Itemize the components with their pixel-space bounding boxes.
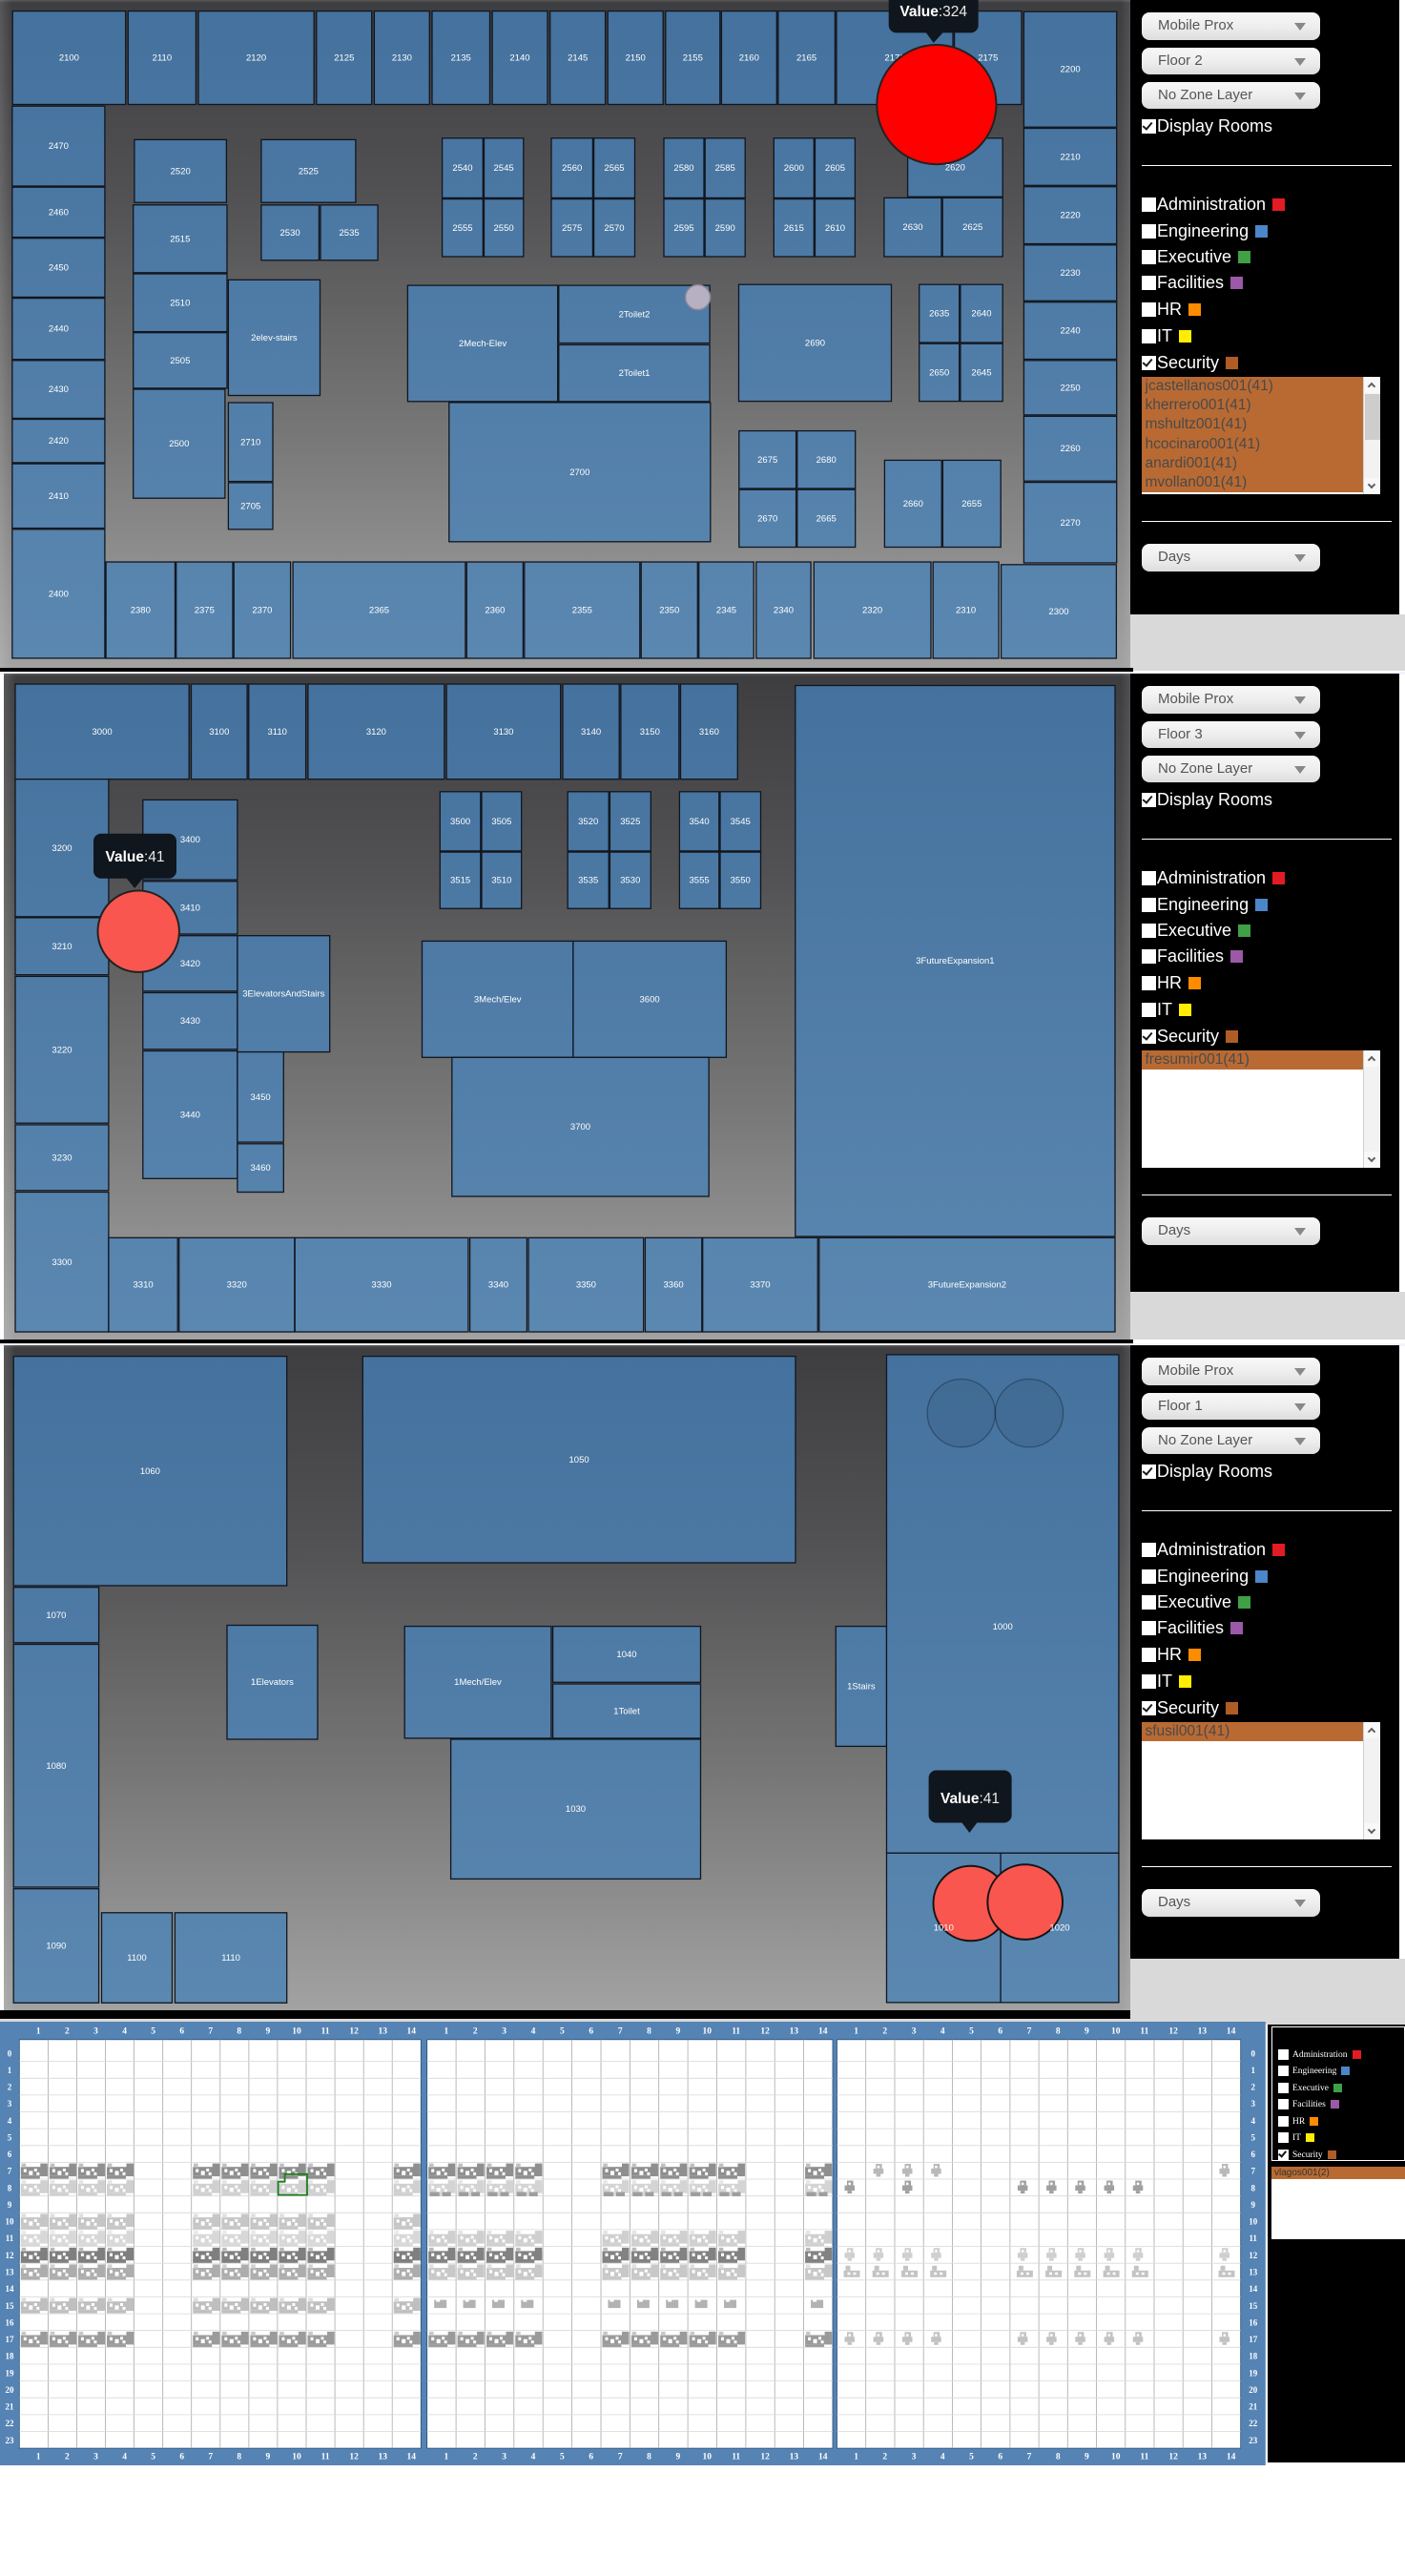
- svg-text:11: 11: [1140, 2026, 1148, 2036]
- svg-text:15: 15: [1249, 2300, 1257, 2310]
- svg-text:1: 1: [854, 2452, 858, 2462]
- svg-text:3430: 3430: [180, 1016, 200, 1027]
- svg-text:2Toilet2: 2Toilet2: [619, 309, 651, 320]
- svg-text:10: 10: [1111, 2452, 1121, 2462]
- svg-text:3555: 3555: [690, 876, 710, 886]
- svg-text:3515: 3515: [450, 876, 470, 886]
- svg-text:2665: 2665: [816, 513, 837, 524]
- svg-text:10: 10: [292, 2026, 301, 2036]
- svg-text:11: 11: [6, 2233, 14, 2243]
- svg-text:2: 2: [1250, 2082, 1255, 2091]
- svg-text:2645: 2645: [971, 367, 991, 378]
- svg-text:2460: 2460: [49, 207, 69, 218]
- svg-text:22: 22: [1249, 2419, 1257, 2428]
- svg-text:11: 11: [1140, 2452, 1148, 2462]
- svg-text:2130: 2130: [392, 53, 412, 64]
- svg-text:2240: 2240: [1061, 326, 1081, 337]
- svg-text:2555: 2555: [452, 223, 472, 234]
- svg-text:9: 9: [1085, 2452, 1089, 2462]
- svg-text:4: 4: [122, 2026, 127, 2036]
- svg-text:23: 23: [6, 2435, 14, 2444]
- svg-text:2620: 2620: [945, 163, 965, 174]
- svg-text:2230: 2230: [1061, 268, 1081, 279]
- svg-text:2155: 2155: [683, 53, 703, 64]
- svg-text:21: 21: [1249, 2401, 1257, 2411]
- svg-text:10: 10: [703, 2026, 713, 2036]
- svg-text:2300: 2300: [1048, 607, 1068, 617]
- svg-text:1070: 1070: [46, 1610, 66, 1621]
- svg-text:3: 3: [1250, 2099, 1255, 2109]
- svg-text:3230: 3230: [52, 1153, 72, 1163]
- svg-text:8: 8: [647, 2026, 651, 2036]
- svg-text:3: 3: [912, 2452, 917, 2462]
- svg-text:2: 2: [473, 2026, 478, 2036]
- svg-text:10: 10: [6, 2216, 14, 2226]
- svg-text:2670: 2670: [757, 513, 777, 524]
- svg-text:2680: 2680: [816, 455, 837, 466]
- svg-text:18: 18: [6, 2351, 14, 2360]
- svg-text:2610: 2610: [825, 223, 845, 234]
- svg-text:1110: 1110: [221, 1953, 240, 1963]
- svg-text:8: 8: [1056, 2452, 1061, 2462]
- svg-text:12: 12: [6, 2250, 14, 2259]
- svg-text:2535: 2535: [340, 228, 360, 239]
- svg-text:3210: 3210: [52, 942, 72, 952]
- svg-text:2: 2: [65, 2452, 70, 2462]
- svg-text:3330: 3330: [371, 1280, 391, 1291]
- svg-text:5: 5: [560, 2026, 565, 2036]
- svg-text:2575: 2575: [562, 223, 582, 234]
- svg-text:2160: 2160: [739, 53, 759, 64]
- svg-text:17: 17: [1249, 2334, 1257, 2343]
- svg-text:3400: 3400: [180, 835, 200, 845]
- svg-text:2550: 2550: [494, 223, 514, 234]
- svg-text:9: 9: [1085, 2026, 1089, 2036]
- svg-text:6: 6: [179, 2452, 184, 2462]
- svg-text:2Mech-Elev: 2Mech-Elev: [459, 339, 506, 349]
- svg-text:3340: 3340: [488, 1280, 508, 1291]
- svg-text:2545: 2545: [494, 163, 514, 174]
- svg-text:2355: 2355: [572, 606, 592, 616]
- svg-text:2410: 2410: [49, 491, 69, 502]
- svg-text:13: 13: [1198, 2026, 1208, 2036]
- svg-text:13: 13: [790, 2452, 799, 2462]
- svg-text:2380: 2380: [131, 606, 151, 616]
- svg-text:8: 8: [8, 2183, 12, 2192]
- svg-text:2660: 2660: [903, 499, 923, 509]
- svg-text:11: 11: [321, 2452, 330, 2462]
- svg-text:3420: 3420: [180, 959, 200, 969]
- svg-text:2400: 2400: [49, 589, 69, 599]
- svg-text:9: 9: [676, 2026, 681, 2036]
- svg-text:12: 12: [760, 2026, 770, 2036]
- svg-text:2200: 2200: [1061, 65, 1081, 75]
- svg-text:19: 19: [1249, 2368, 1257, 2378]
- svg-text:2560: 2560: [562, 163, 582, 174]
- svg-text:6: 6: [589, 2026, 593, 2036]
- svg-text:4: 4: [531, 2026, 536, 2036]
- svg-text:3520: 3520: [578, 817, 598, 827]
- svg-text:2260: 2260: [1061, 444, 1081, 454]
- svg-text:7: 7: [208, 2026, 213, 2036]
- svg-text:5: 5: [151, 2026, 155, 2036]
- svg-text:3370: 3370: [750, 1280, 770, 1291]
- svg-text:9: 9: [266, 2452, 271, 2462]
- svg-text:4: 4: [531, 2452, 536, 2462]
- svg-text:2: 2: [882, 2026, 887, 2036]
- svg-text:4: 4: [940, 2452, 945, 2462]
- svg-text:2500: 2500: [169, 439, 189, 449]
- svg-text:Value:324: Value:324: [899, 4, 967, 20]
- svg-text:1: 1: [36, 2452, 41, 2462]
- svg-text:3: 3: [93, 2452, 98, 2462]
- svg-text:10: 10: [703, 2452, 713, 2462]
- svg-text:9: 9: [676, 2452, 681, 2462]
- svg-text:16: 16: [1249, 2317, 1257, 2327]
- svg-text:15: 15: [6, 2300, 14, 2310]
- svg-text:1040: 1040: [616, 1650, 636, 1660]
- svg-text:9: 9: [8, 2200, 12, 2210]
- svg-text:13: 13: [378, 2452, 387, 2462]
- svg-text:2510: 2510: [170, 298, 190, 308]
- svg-text:3320: 3320: [227, 1280, 247, 1291]
- svg-text:1100: 1100: [127, 1953, 146, 1963]
- svg-text:3: 3: [502, 2452, 506, 2462]
- svg-text:3530: 3530: [620, 876, 640, 886]
- svg-text:2540: 2540: [452, 163, 472, 174]
- svg-text:1000: 1000: [993, 1622, 1013, 1632]
- svg-text:3510: 3510: [491, 876, 511, 886]
- svg-text:5: 5: [151, 2452, 155, 2462]
- svg-text:1090: 1090: [46, 1942, 66, 1952]
- svg-text:7: 7: [618, 2026, 623, 2036]
- svg-text:2310: 2310: [956, 606, 976, 616]
- svg-text:2345: 2345: [716, 606, 736, 616]
- svg-text:7: 7: [8, 2166, 12, 2175]
- svg-text:2430: 2430: [49, 384, 69, 395]
- svg-text:3300: 3300: [52, 1257, 72, 1268]
- svg-text:10: 10: [1111, 2026, 1121, 2036]
- svg-text:3220: 3220: [52, 1045, 72, 1055]
- svg-text:1080: 1080: [46, 1761, 66, 1772]
- svg-text:3310: 3310: [134, 1280, 154, 1291]
- svg-text:2710: 2710: [240, 437, 260, 447]
- svg-text:2525: 2525: [299, 166, 319, 177]
- svg-text:2635: 2635: [929, 309, 949, 320]
- svg-text:1020: 1020: [1049, 1923, 1069, 1934]
- svg-text:2705: 2705: [240, 501, 260, 511]
- svg-text:2640: 2640: [971, 309, 991, 320]
- svg-text:8: 8: [237, 2452, 241, 2462]
- svg-text:2140: 2140: [509, 53, 529, 64]
- svg-text:8: 8: [1056, 2026, 1061, 2036]
- svg-text:4: 4: [122, 2452, 127, 2462]
- svg-text:13: 13: [6, 2267, 14, 2276]
- svg-text:1: 1: [444, 2026, 449, 2036]
- svg-text:Value:41: Value:41: [940, 1791, 1000, 1807]
- svg-text:19: 19: [6, 2368, 14, 2378]
- svg-text:3450: 3450: [251, 1092, 271, 1103]
- svg-text:11: 11: [732, 2452, 740, 2462]
- svg-text:3140: 3140: [581, 727, 601, 737]
- svg-text:3410: 3410: [180, 903, 200, 913]
- svg-text:3ElevatorsAndStairs: 3ElevatorsAndStairs: [242, 989, 324, 1000]
- svg-text:3525: 3525: [620, 817, 640, 827]
- svg-text:3535: 3535: [578, 876, 598, 886]
- svg-text:3110: 3110: [267, 727, 286, 737]
- svg-text:3: 3: [93, 2026, 98, 2036]
- svg-text:5: 5: [969, 2452, 974, 2462]
- svg-text:3FutureExpansion1: 3FutureExpansion1: [916, 956, 994, 966]
- svg-text:12: 12: [1168, 2026, 1178, 2036]
- svg-text:2165: 2165: [796, 53, 816, 64]
- svg-text:0: 0: [1250, 2048, 1255, 2058]
- svg-text:7: 7: [208, 2452, 213, 2462]
- svg-text:3: 3: [502, 2026, 506, 2036]
- svg-text:2570: 2570: [604, 223, 624, 234]
- svg-text:3500: 3500: [450, 817, 470, 827]
- svg-text:4: 4: [1250, 2115, 1255, 2125]
- svg-text:6: 6: [179, 2026, 184, 2036]
- svg-text:3: 3: [912, 2026, 917, 2036]
- svg-text:4: 4: [940, 2026, 945, 2036]
- svg-text:2530: 2530: [280, 228, 300, 239]
- svg-text:2520: 2520: [171, 166, 191, 177]
- svg-text:6: 6: [998, 2026, 1002, 2036]
- svg-text:2: 2: [473, 2452, 478, 2462]
- svg-text:2440: 2440: [49, 324, 69, 335]
- svg-text:2590: 2590: [715, 223, 735, 234]
- svg-text:14: 14: [1227, 2452, 1236, 2462]
- svg-text:12: 12: [349, 2026, 359, 2036]
- svg-text:2505: 2505: [170, 356, 190, 366]
- svg-text:3Mech/Elev: 3Mech/Elev: [474, 994, 522, 1005]
- svg-text:14: 14: [407, 2452, 417, 2462]
- svg-text:14: 14: [818, 2026, 828, 2036]
- svg-text:12: 12: [1249, 2250, 1257, 2259]
- svg-text:2625: 2625: [962, 222, 982, 233]
- svg-text:20: 20: [1249, 2384, 1257, 2394]
- svg-text:1: 1: [854, 2026, 858, 2036]
- svg-text:2: 2: [882, 2452, 887, 2462]
- svg-text:10: 10: [292, 2452, 301, 2462]
- svg-text:2145: 2145: [568, 53, 588, 64]
- svg-text:1: 1: [444, 2452, 449, 2462]
- svg-text:1: 1: [1250, 2065, 1255, 2074]
- svg-text:3440: 3440: [180, 1110, 200, 1120]
- svg-text:3: 3: [8, 2099, 12, 2109]
- svg-text:3100: 3100: [209, 727, 229, 737]
- svg-text:2100: 2100: [59, 53, 79, 64]
- svg-text:2Toilet1: 2Toilet1: [619, 368, 651, 379]
- svg-text:2110: 2110: [153, 53, 172, 64]
- svg-text:1: 1: [36, 2026, 41, 2036]
- svg-text:1Mech/Elev: 1Mech/Elev: [454, 1677, 502, 1688]
- svg-text:17: 17: [6, 2334, 14, 2343]
- svg-text:2370: 2370: [252, 606, 272, 616]
- svg-text:3000: 3000: [93, 727, 113, 737]
- svg-text:5: 5: [1250, 2132, 1255, 2142]
- svg-text:10: 10: [1249, 2216, 1257, 2226]
- svg-text:20: 20: [6, 2384, 14, 2394]
- svg-text:1Toilet: 1Toilet: [613, 1707, 640, 1717]
- svg-text:3540: 3540: [690, 817, 710, 827]
- svg-text:2580: 2580: [673, 163, 693, 174]
- svg-text:3545: 3545: [731, 817, 751, 827]
- svg-text:5: 5: [8, 2132, 12, 2142]
- svg-text:3130: 3130: [493, 727, 513, 737]
- svg-text:5: 5: [969, 2026, 974, 2036]
- svg-text:0: 0: [8, 2048, 12, 2058]
- svg-text:2270: 2270: [1061, 518, 1081, 529]
- svg-text:13: 13: [1198, 2452, 1208, 2462]
- svg-text:3550: 3550: [731, 876, 751, 886]
- svg-text:1: 1: [8, 2065, 12, 2074]
- svg-text:2175: 2175: [978, 53, 998, 64]
- svg-text:7: 7: [1250, 2166, 1255, 2175]
- svg-text:2135: 2135: [451, 53, 471, 64]
- svg-text:13: 13: [1249, 2267, 1257, 2276]
- svg-text:2450: 2450: [49, 263, 69, 274]
- svg-text:2250: 2250: [1061, 383, 1081, 393]
- svg-text:6: 6: [998, 2452, 1002, 2462]
- svg-text:2650: 2650: [929, 367, 949, 378]
- svg-text:11: 11: [321, 2026, 330, 2036]
- svg-text:13: 13: [790, 2026, 799, 2036]
- svg-text:2605: 2605: [825, 163, 845, 174]
- svg-text:1Stairs: 1Stairs: [847, 1682, 876, 1693]
- svg-text:2375: 2375: [195, 606, 215, 616]
- svg-text:4: 4: [8, 2115, 12, 2125]
- svg-text:2365: 2365: [369, 606, 389, 616]
- svg-text:16: 16: [6, 2317, 14, 2327]
- svg-text:14: 14: [1227, 2026, 1236, 2036]
- svg-text:7: 7: [618, 2452, 623, 2462]
- svg-text:11: 11: [1249, 2233, 1257, 2243]
- svg-text:3505: 3505: [491, 817, 511, 827]
- svg-text:6: 6: [8, 2150, 12, 2159]
- svg-text:12: 12: [760, 2452, 770, 2462]
- svg-text:2: 2: [8, 2082, 12, 2091]
- svg-text:2470: 2470: [49, 141, 69, 152]
- svg-text:2: 2: [65, 2026, 70, 2036]
- svg-text:14: 14: [6, 2284, 14, 2294]
- svg-text:21: 21: [6, 2401, 14, 2411]
- svg-text:6: 6: [1250, 2150, 1255, 2159]
- svg-text:6: 6: [589, 2452, 593, 2462]
- svg-text:2340: 2340: [774, 606, 794, 616]
- svg-text:2630: 2630: [902, 222, 922, 233]
- svg-text:3160: 3160: [699, 727, 719, 737]
- svg-text:2120: 2120: [246, 53, 266, 64]
- svg-text:3200: 3200: [52, 843, 72, 854]
- svg-text:2elev-stairs: 2elev-stairs: [251, 333, 298, 343]
- svg-text:8: 8: [237, 2026, 241, 2036]
- svg-text:2150: 2150: [626, 53, 646, 64]
- svg-text:2515: 2515: [170, 234, 190, 244]
- svg-text:2320: 2320: [862, 606, 882, 616]
- svg-text:3700: 3700: [570, 1122, 590, 1132]
- svg-text:3150: 3150: [640, 727, 660, 737]
- svg-text:8: 8: [647, 2452, 651, 2462]
- svg-text:3360: 3360: [664, 1280, 684, 1291]
- svg-text:2700: 2700: [569, 467, 589, 478]
- svg-text:22: 22: [6, 2419, 14, 2428]
- svg-text:2125: 2125: [334, 53, 354, 64]
- svg-text:2655: 2655: [961, 499, 981, 509]
- svg-text:9: 9: [1250, 2200, 1255, 2210]
- svg-text:3350: 3350: [576, 1280, 596, 1291]
- svg-text:3460: 3460: [251, 1163, 271, 1174]
- svg-text:1060: 1060: [140, 1466, 160, 1477]
- svg-text:14: 14: [818, 2452, 828, 2462]
- svg-text:14: 14: [1249, 2284, 1257, 2294]
- svg-text:1010: 1010: [934, 1923, 954, 1934]
- svg-text:5: 5: [560, 2452, 565, 2462]
- svg-text:2690: 2690: [805, 338, 825, 348]
- svg-text:3120: 3120: [366, 727, 386, 737]
- svg-text:2585: 2585: [715, 163, 735, 174]
- svg-text:13: 13: [378, 2026, 387, 2036]
- svg-text:2595: 2595: [673, 223, 693, 234]
- svg-text:1030: 1030: [566, 1804, 586, 1815]
- svg-text:2565: 2565: [604, 163, 624, 174]
- svg-text:11: 11: [732, 2026, 740, 2036]
- svg-text:2210: 2210: [1061, 152, 1081, 162]
- svg-text:7: 7: [1027, 2452, 1032, 2462]
- svg-text:2220: 2220: [1061, 211, 1081, 221]
- svg-text:14: 14: [407, 2026, 417, 2036]
- svg-text:2675: 2675: [757, 455, 777, 466]
- svg-text:Value:41: Value:41: [105, 849, 164, 865]
- svg-text:9: 9: [266, 2026, 271, 2036]
- svg-text:2600: 2600: [784, 163, 804, 174]
- svg-text:23: 23: [1249, 2435, 1257, 2444]
- svg-text:1Elevators: 1Elevators: [251, 1677, 294, 1688]
- svg-text:12: 12: [349, 2452, 359, 2462]
- svg-text:8: 8: [1250, 2183, 1255, 2192]
- svg-text:18: 18: [1249, 2351, 1257, 2360]
- svg-text:2360: 2360: [485, 606, 505, 616]
- svg-text:3600: 3600: [640, 994, 660, 1005]
- svg-text:1050: 1050: [569, 1455, 589, 1465]
- svg-text:3FutureExpansion2: 3FutureExpansion2: [928, 1280, 1006, 1291]
- svg-text:2615: 2615: [784, 223, 804, 234]
- svg-text:2420: 2420: [49, 436, 69, 447]
- svg-text:12: 12: [1168, 2452, 1178, 2462]
- svg-text:2350: 2350: [659, 606, 679, 616]
- svg-text:7: 7: [1027, 2026, 1032, 2036]
